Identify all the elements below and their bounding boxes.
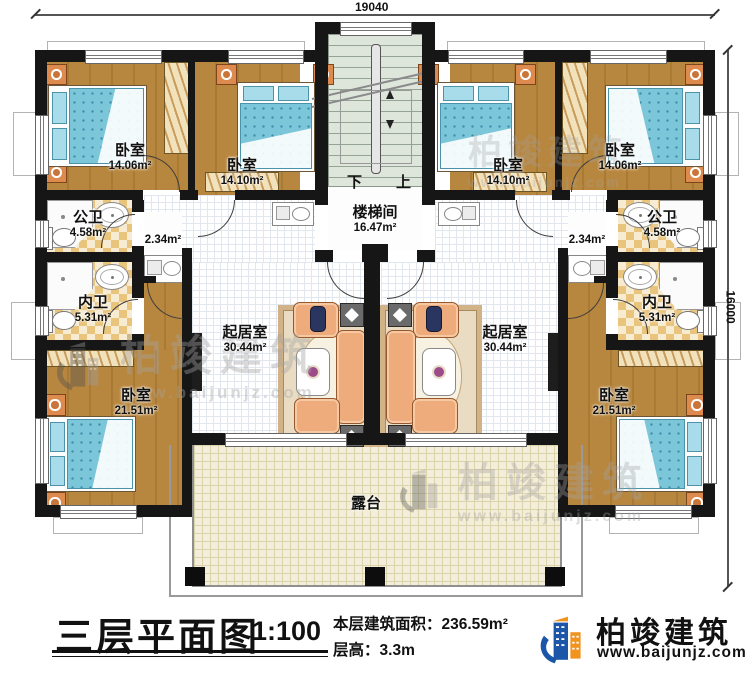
drawing-scale: 1:100 — [252, 616, 321, 647]
wall — [144, 276, 156, 283]
nightstand — [44, 394, 66, 416]
pillow — [685, 128, 700, 160]
wall — [690, 505, 715, 517]
basin — [573, 261, 591, 276]
bay-outline — [13, 112, 37, 176]
column — [545, 567, 565, 586]
window — [615, 505, 692, 519]
bed — [46, 416, 136, 492]
cabinet — [462, 206, 476, 220]
washbasin-counter — [272, 202, 314, 226]
wall — [558, 505, 615, 517]
sofa — [336, 330, 366, 424]
mattress — [67, 419, 133, 489]
room-label: 楼梯间16.47m² — [352, 205, 397, 235]
room-label: 起居室30.44m² — [482, 325, 527, 355]
room-label: 公卫4.58m² — [70, 210, 106, 240]
window — [35, 418, 49, 484]
bay-outline — [609, 517, 699, 534]
bay-outline — [53, 517, 143, 534]
toilet-bowl — [676, 311, 700, 330]
floor-height-line: 层高：3.3m — [333, 638, 415, 660]
wall — [555, 62, 562, 190]
floor-height-value: 3.3m — [380, 642, 415, 659]
wall — [606, 252, 715, 262]
wall — [182, 433, 225, 445]
stair-direction-arrow — [386, 90, 394, 99]
floor-height-label: 层高： — [333, 642, 380, 659]
toilet-bowl — [52, 311, 76, 330]
pillow — [52, 92, 67, 124]
person-figure — [310, 306, 326, 332]
nightstand — [515, 64, 536, 85]
window — [35, 220, 49, 248]
terrace-apron-line — [169, 445, 171, 597]
title-underline — [52, 650, 328, 653]
wall — [558, 248, 568, 445]
stair-well-outline — [340, 90, 412, 164]
tv — [548, 333, 558, 391]
person-figure — [426, 306, 442, 332]
floor-area-value: 236.59m² — [442, 616, 508, 633]
cabinet — [590, 260, 605, 275]
room-label: 2.34m² — [569, 234, 605, 247]
closet — [164, 62, 190, 154]
floor-plan: 19040 16000 — [0, 0, 750, 678]
window — [703, 418, 717, 484]
mattress — [619, 419, 685, 489]
wall — [552, 190, 570, 200]
pillow — [478, 86, 509, 101]
pillow — [243, 86, 274, 101]
sliding-door — [225, 433, 347, 447]
sink — [95, 264, 129, 290]
dimension-value: 16000 — [724, 290, 738, 323]
room-label: 露台 — [351, 496, 381, 513]
terrace-floor — [192, 445, 562, 587]
window — [340, 22, 412, 36]
wall — [417, 250, 435, 262]
room-label: 卧室21.51m² — [593, 388, 636, 418]
floor-area-line: 本层建筑面积：236.59m² — [333, 612, 508, 634]
bed — [616, 416, 706, 492]
window — [590, 50, 667, 64]
window — [35, 115, 49, 175]
closet — [562, 62, 588, 154]
basin — [444, 207, 462, 221]
wall — [180, 190, 198, 200]
dimension-value: 19040 — [355, 0, 388, 14]
nightstand — [216, 64, 237, 85]
pillow — [278, 86, 309, 101]
company-url: www.baijunjz.com — [597, 644, 747, 662]
armchair — [412, 398, 458, 434]
room-label: 内卫5.31m² — [75, 295, 111, 325]
wall — [606, 340, 715, 350]
room-label: 内卫5.31m² — [639, 295, 675, 325]
room-label: 卧室14.10m² — [487, 158, 530, 188]
party-wall — [364, 250, 380, 433]
window — [703, 306, 717, 336]
side-table — [340, 303, 364, 327]
room-label: 卧室21.51m² — [115, 388, 158, 418]
wall — [132, 200, 144, 212]
wall — [607, 190, 715, 200]
wall — [422, 22, 435, 205]
wall — [345, 433, 405, 445]
tv — [192, 333, 202, 391]
window — [35, 306, 49, 336]
column — [365, 567, 385, 586]
wall — [35, 190, 143, 200]
wall — [182, 248, 192, 445]
wall — [235, 190, 315, 200]
window — [703, 115, 717, 175]
pillow — [687, 456, 702, 486]
window — [703, 220, 717, 248]
wall — [35, 252, 144, 262]
room-label: 2.34m² — [145, 234, 181, 247]
dimension-line — [35, 14, 715, 16]
company-logo-icon — [532, 606, 592, 668]
wall — [435, 190, 515, 200]
sink — [623, 264, 657, 290]
floor-area-label: 本层建筑面积： — [333, 616, 442, 633]
room-label: 卧室14.10m² — [221, 158, 264, 188]
stair-direction-arrow — [386, 120, 394, 129]
wall — [525, 433, 568, 445]
bay-outline — [11, 302, 37, 360]
window — [85, 50, 162, 64]
window — [448, 50, 524, 64]
toilet — [674, 310, 706, 331]
nightstand — [46, 64, 67, 85]
basin — [292, 207, 310, 221]
stair-up-label: 上 — [396, 171, 411, 192]
pillow — [50, 456, 65, 486]
coffee-table — [296, 348, 330, 396]
pillow — [52, 128, 67, 160]
pillow — [50, 422, 65, 452]
wall — [315, 22, 328, 205]
wall — [35, 505, 60, 517]
pillow — [685, 92, 700, 124]
wall — [35, 340, 144, 350]
stair-down-label: 下 — [347, 171, 362, 192]
terrace-apron-line — [581, 445, 583, 597]
company-logo — [532, 606, 592, 673]
cabinet — [276, 206, 290, 220]
column — [185, 567, 205, 586]
pillow — [443, 86, 474, 101]
wall — [606, 200, 618, 212]
cabinet — [147, 260, 162, 275]
closet — [618, 350, 708, 367]
room-label: 公卫4.58m² — [644, 210, 680, 240]
sliding-door — [405, 433, 527, 447]
terrace-apron-line — [169, 595, 583, 597]
window — [228, 50, 304, 64]
basin — [163, 261, 181, 276]
washbasin-counter — [438, 202, 480, 226]
coffee-table — [422, 348, 456, 396]
wall — [188, 62, 195, 190]
room-label: 起居室30.44m² — [222, 325, 267, 355]
wall — [594, 276, 606, 283]
room-label: 卧室14.06m² — [109, 143, 152, 173]
window — [60, 505, 137, 519]
wall — [135, 505, 192, 517]
side-table — [388, 303, 412, 327]
closet — [44, 350, 134, 367]
wall — [315, 250, 333, 262]
title-underline — [52, 656, 328, 657]
armchair — [294, 398, 340, 434]
room-label: 卧室14.06m² — [599, 143, 642, 173]
pillow — [687, 422, 702, 452]
